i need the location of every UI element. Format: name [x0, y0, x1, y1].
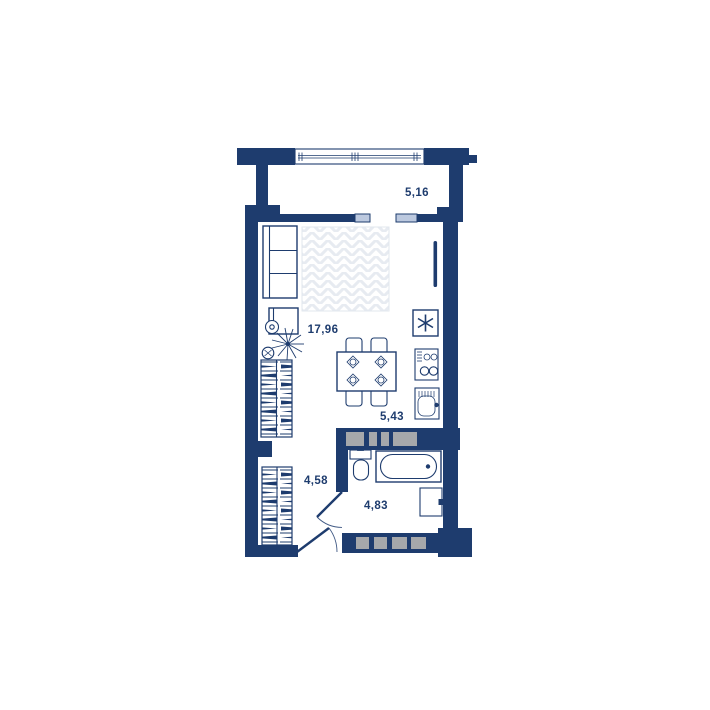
- wall-right: [443, 222, 458, 557]
- office-chair-icon: [266, 321, 279, 334]
- wall-bathroom-left: [336, 450, 348, 492]
- bathtub-icon: [376, 451, 441, 482]
- vent-shaft-icon: [346, 432, 364, 446]
- window-icon: [396, 214, 417, 222]
- dining-table-icon: [337, 352, 396, 391]
- balcony-window: [295, 149, 424, 164]
- wall-stub-hallway: [245, 441, 272, 457]
- kitchen-area-label: 5,43: [380, 411, 404, 423]
- wall-top-right-block: [424, 148, 469, 165]
- vent-shaft-icon: [356, 537, 369, 549]
- wall-corner-top-right: [437, 207, 463, 222]
- window-icon: [355, 214, 370, 222]
- sofa-icon: [263, 226, 297, 298]
- vent-shaft-icon: [411, 537, 426, 549]
- wall-balcony-divider-left: [258, 214, 355, 222]
- wall-bottom-left: [245, 545, 298, 557]
- double-bed-icon: [302, 227, 389, 311]
- vent-hood-icon: [413, 310, 438, 336]
- vent-shaft-icon: [381, 432, 389, 446]
- window-icon: [295, 149, 424, 164]
- balcony-door-leaf-icon: [434, 241, 438, 287]
- wardrobe-icon: [262, 467, 292, 545]
- bathroom-door-swing-icon: [317, 492, 342, 527]
- wall-left: [245, 205, 258, 557]
- toilet-icon: [350, 448, 371, 481]
- bathroom-area-label: 4,83: [364, 500, 388, 512]
- vent-shaft-icon-top: [346, 432, 417, 446]
- floor-plan-drawing: 5,16 17,96 5,43 4,58 4,83: [0, 0, 710, 710]
- kitchen-sink-icon: [415, 388, 439, 419]
- vent-shaft-icon: [392, 537, 407, 549]
- wall-top-right-tab: [469, 155, 477, 163]
- cooktop-icon: [415, 349, 438, 380]
- vent-shaft-icon: [374, 537, 387, 549]
- hallway-area-label: 4,58: [304, 475, 328, 487]
- living-room-area-label: 17,96: [308, 324, 339, 336]
- vent-shaft-icon: [393, 432, 417, 446]
- washing-machine-icon: [420, 488, 443, 516]
- balcony-left-pillar: [256, 165, 268, 207]
- wall-top-left-block: [237, 148, 295, 165]
- balcony-area-label: 5,16: [405, 187, 429, 199]
- plant-pot-icon: [262, 347, 274, 359]
- wardrobe-icon: [261, 360, 292, 437]
- dining-set: [337, 338, 396, 406]
- floor-plan-canvas: 5,16 17,96 5,43 4,58 4,83: [0, 0, 710, 710]
- vent-shaft-icon: [369, 432, 377, 446]
- entrance-door-swing-icon: [297, 528, 337, 552]
